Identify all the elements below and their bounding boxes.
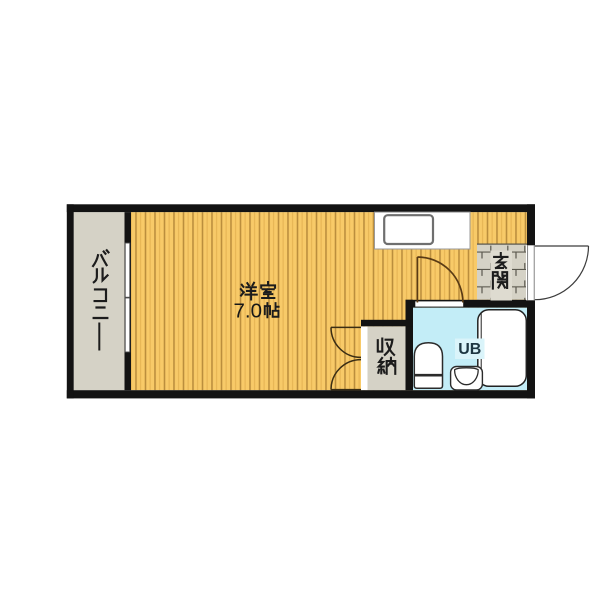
svg-text:UB: UB xyxy=(458,341,481,358)
svg-text:7.0: 7.0 xyxy=(234,300,263,323)
